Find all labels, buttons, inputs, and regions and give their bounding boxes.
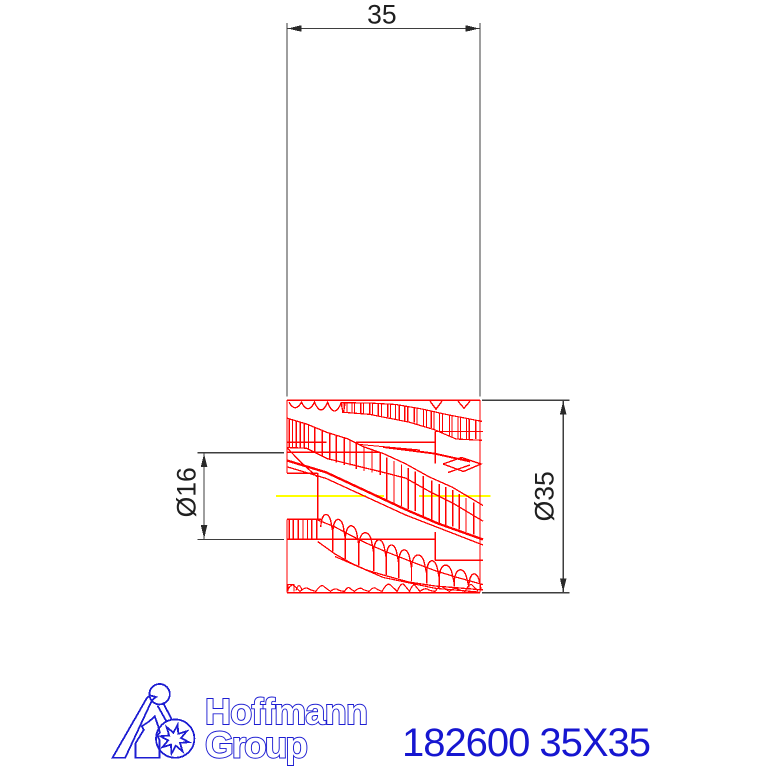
svg-text:Ø35: Ø35 [530,471,560,521]
svg-text:Ø16: Ø16 [172,467,202,517]
svg-text:Group: Group [205,724,308,765]
svg-text:182600 35X35: 182600 35X35 [402,721,651,765]
svg-text:35: 35 [367,0,396,30]
